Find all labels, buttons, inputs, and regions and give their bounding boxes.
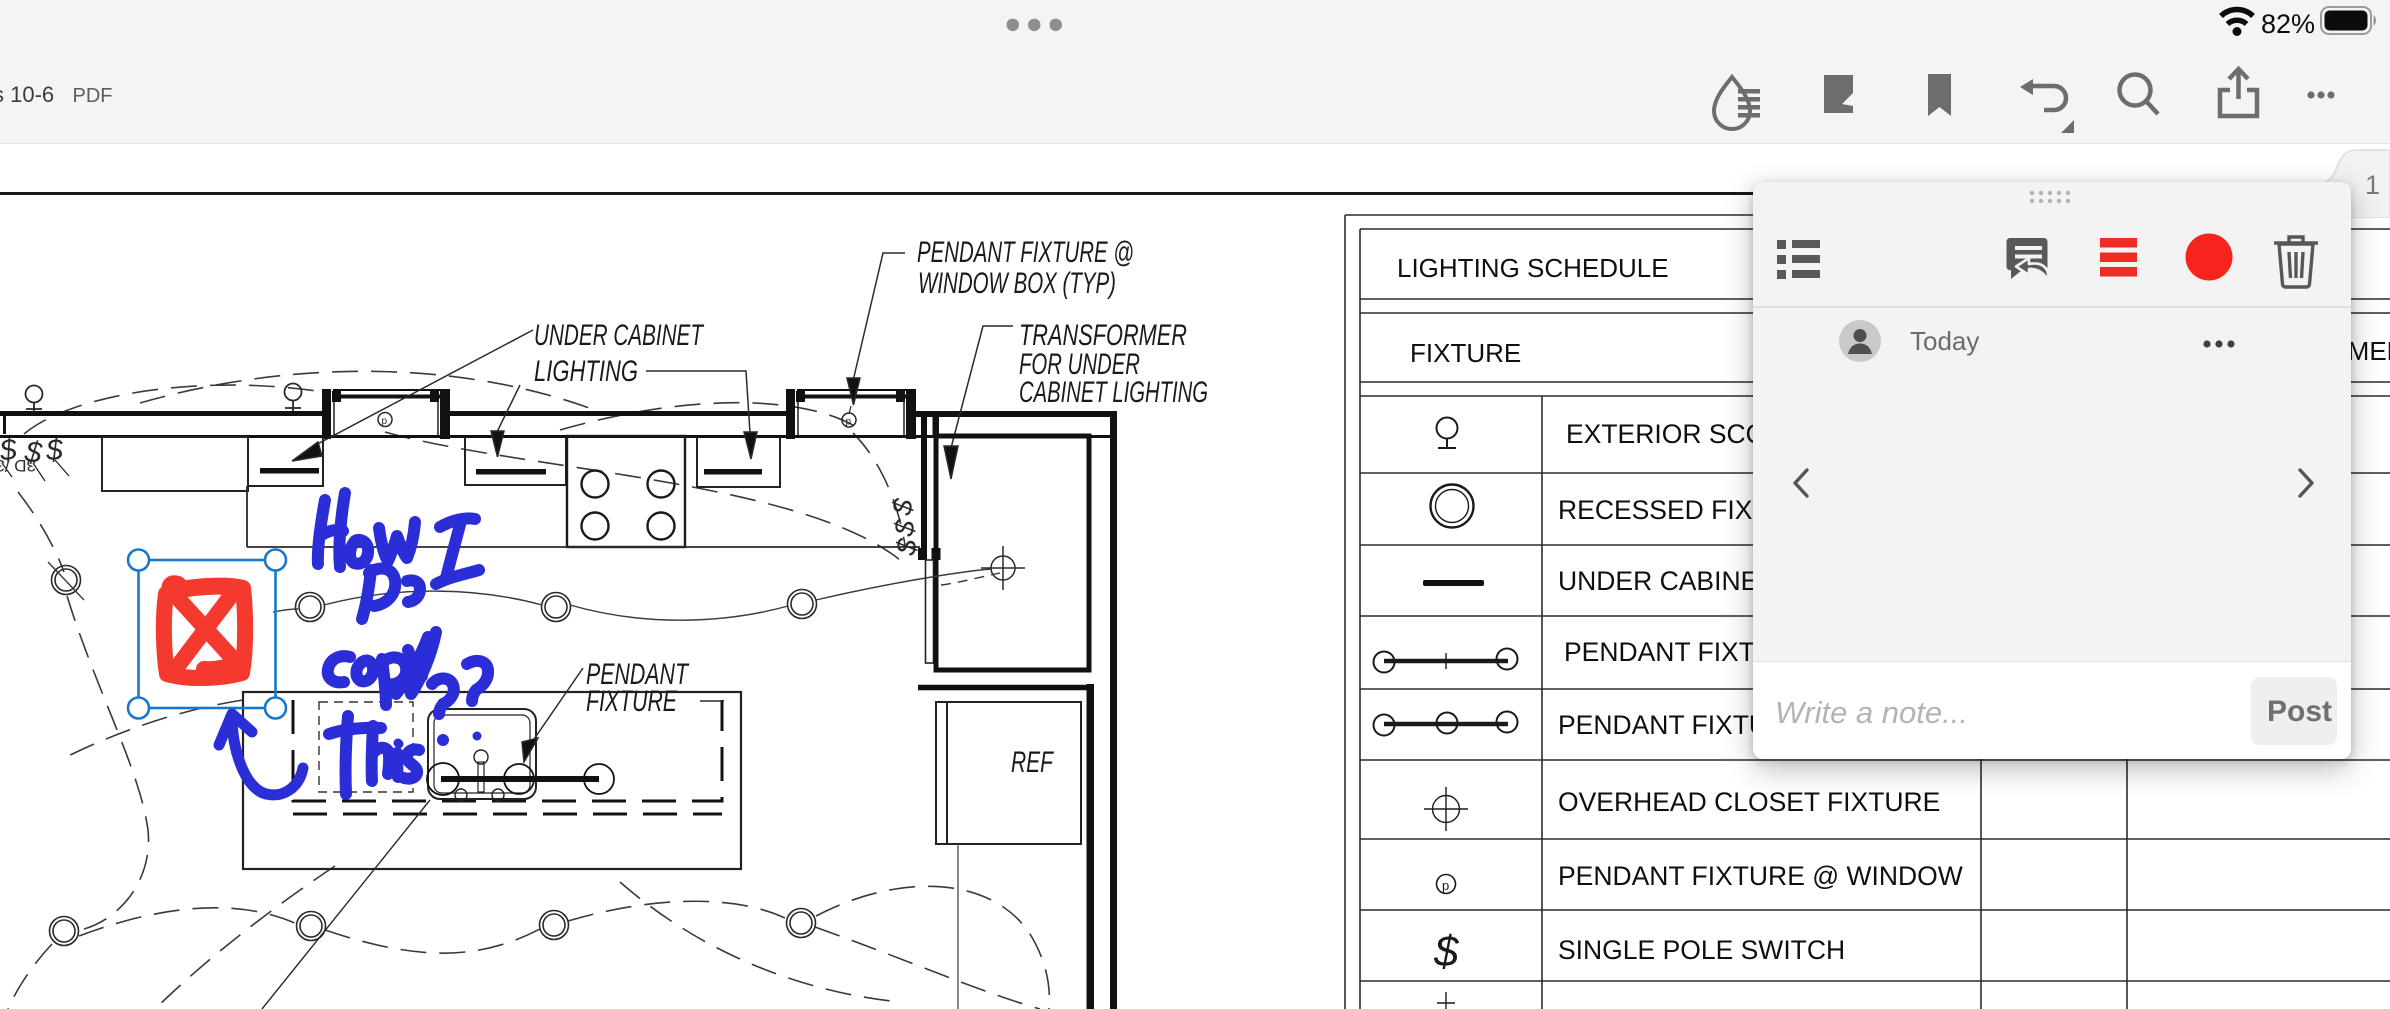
svg-text:1: 1 xyxy=(2365,170,2380,200)
svg-text:3D /3: 3D /3 xyxy=(0,456,36,475)
svg-text:WINDOW BOX (TYP): WINDOW BOX (TYP) xyxy=(918,267,1116,300)
svg-text:PENDANT FIXTURE @ WINDOW: PENDANT FIXTURE @ WINDOW xyxy=(1558,861,1963,891)
svg-text:$: $ xyxy=(1433,927,1460,976)
svg-text:LIGHTING SCHEDULE: LIGHTING SCHEDULE xyxy=(1397,253,1669,283)
svg-text:FIXTURE: FIXTURE xyxy=(586,685,678,718)
svg-text:p: p xyxy=(382,416,388,427)
svg-text:OVERHEAD CLOSET FIXTURE: OVERHEAD CLOSET FIXTURE xyxy=(1558,787,1940,817)
svg-text:CABINET LIGHTING: CABINET LIGHTING xyxy=(1019,376,1208,409)
svg-text:UNDER CABINET: UNDER CABINET xyxy=(534,319,705,352)
svg-text:PENDANT FIXTURE @: PENDANT FIXTURE @ xyxy=(917,236,1134,269)
svg-text:SINGLE POLE SWITCH: SINGLE POLE SWITCH xyxy=(1558,935,1845,965)
svg-text:82%: 82% xyxy=(2261,9,2315,39)
svg-text:p: p xyxy=(1442,878,1449,893)
svg-text:LIGHTING: LIGHTING xyxy=(534,355,638,388)
svg-text:REF: REF xyxy=(1011,746,1054,779)
svg-text:FIXTURE: FIXTURE xyxy=(1410,338,1521,368)
svg-text:p: p xyxy=(846,417,852,428)
